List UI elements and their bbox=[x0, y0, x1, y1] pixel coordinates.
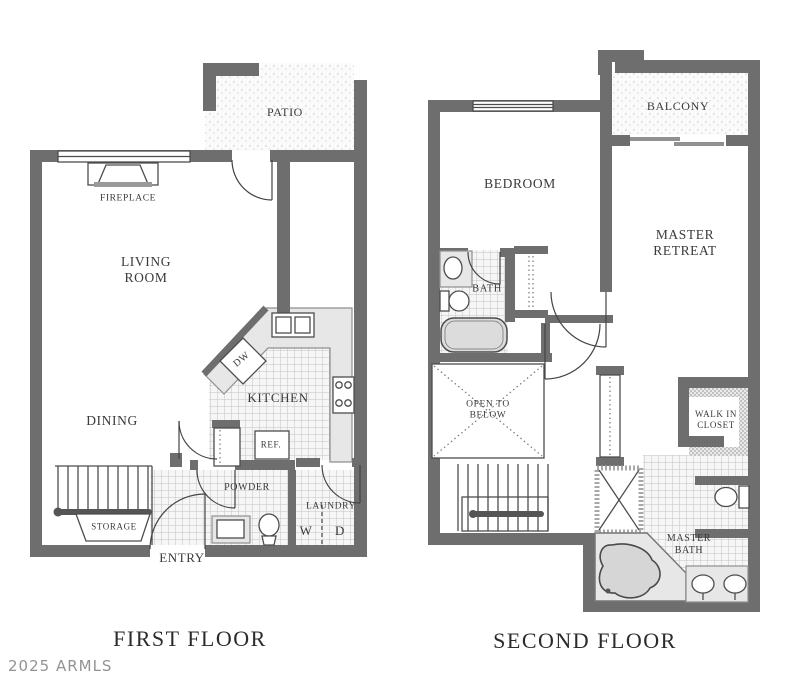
fireplace bbox=[88, 163, 158, 187]
fireplace-label: FIREPLACE bbox=[100, 193, 156, 204]
second-floor-stairs bbox=[458, 464, 548, 531]
walk-in-closet-label: WALK IN CLOSET bbox=[695, 409, 737, 431]
linen-closet bbox=[600, 375, 620, 457]
refrigerator-label: REF. bbox=[261, 440, 281, 451]
living-room-label: LIVING ROOM bbox=[121, 254, 171, 286]
storage-label: STORAGE bbox=[91, 522, 137, 533]
dining-label: DINING bbox=[86, 413, 138, 429]
armls-watermark: 2025 ARMLS bbox=[8, 657, 112, 675]
dryer-label: D bbox=[335, 523, 345, 539]
bedroom-label: BEDROOM bbox=[484, 176, 556, 192]
kitchen-label: KITCHEN bbox=[247, 390, 308, 406]
laundry-label: LAUNDRY bbox=[306, 501, 356, 512]
washer-label: W bbox=[300, 523, 313, 539]
first-floor-title: FIRST FLOOR bbox=[113, 626, 267, 652]
floor-plan-page: PATIO FIREPLACE LIVING ROOM DINING KITCH… bbox=[0, 0, 800, 700]
powder-label: POWDER bbox=[224, 482, 270, 494]
master-bath-label: MASTER BATH bbox=[667, 533, 711, 557]
open-to-below-label: OPEN TO BELOW bbox=[466, 400, 510, 423]
second-floor-title: SECOND FLOOR bbox=[493, 628, 677, 654]
entry-label: ENTRY bbox=[159, 550, 205, 566]
balcony-label: BALCONY bbox=[647, 99, 709, 113]
powder-fixtures bbox=[212, 514, 279, 545]
patio-label: PATIO bbox=[267, 105, 303, 119]
master-retreat-label: MASTER RETREAT bbox=[653, 227, 716, 259]
bath-label: BATH bbox=[472, 284, 502, 297]
first-floor-stairs bbox=[54, 466, 153, 545]
